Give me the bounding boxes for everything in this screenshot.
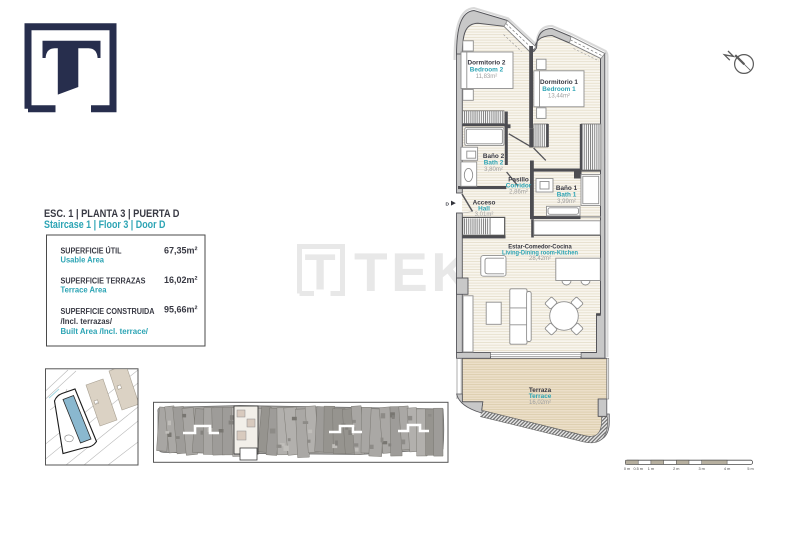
svg-text:5 m: 5 m [747, 467, 753, 471]
svg-text:3,80m²: 3,80m² [484, 167, 503, 173]
svg-text:Bedroom 2: Bedroom 2 [470, 66, 504, 73]
svg-text:95,66m²: 95,66m² [164, 305, 198, 316]
svg-text:Bath 1: Bath 1 [557, 191, 577, 198]
svg-text:16,02m²: 16,02m² [164, 275, 198, 286]
svg-text:Bedroom 1: Bedroom 1 [542, 86, 576, 93]
svg-text:4 m: 4 m [724, 467, 730, 471]
svg-text:1 m: 1 m [648, 467, 654, 471]
svg-text:3 m: 3 m [699, 467, 705, 471]
svg-text:3,99m²: 3,99m² [557, 199, 576, 205]
svg-text:Staircase 1 | Floor 3 | Door D: Staircase 1 | Floor 3 | Door D [44, 219, 166, 231]
svg-text:D: D [446, 201, 450, 207]
svg-text:2 m: 2 m [673, 467, 679, 471]
svg-text:13,44m²: 13,44m² [548, 94, 570, 100]
svg-text:Terrace: Terrace [529, 393, 552, 400]
svg-text:Bath 2: Bath 2 [484, 159, 504, 166]
svg-text:Built Area /Incl. terrace/: Built Area /Incl. terrace/ [61, 326, 149, 336]
svg-text:Terrace Area: Terrace Area [61, 285, 107, 295]
svg-text:11,83m²: 11,83m² [476, 74, 498, 80]
svg-text:0 m: 0 m [624, 467, 630, 471]
svg-text:28,42m²: 28,42m² [529, 256, 551, 262]
svg-text:Usable Area: Usable Area [61, 255, 105, 265]
svg-text:2,86m²: 2,86m² [509, 189, 528, 195]
svg-text:67,35m²: 67,35m² [164, 246, 198, 257]
svg-text:3,01m²: 3,01m² [475, 212, 494, 218]
svg-text:0.5 m: 0.5 m [633, 467, 643, 471]
svg-text:16,02m²: 16,02m² [529, 400, 551, 406]
svg-text:/Incl. terrazas/: /Incl. terrazas/ [61, 316, 113, 326]
svg-text:T: T [305, 244, 336, 301]
svg-text:SUPERFICIE CONSTRUIDA: SUPERFICIE CONSTRUIDA [61, 306, 155, 316]
